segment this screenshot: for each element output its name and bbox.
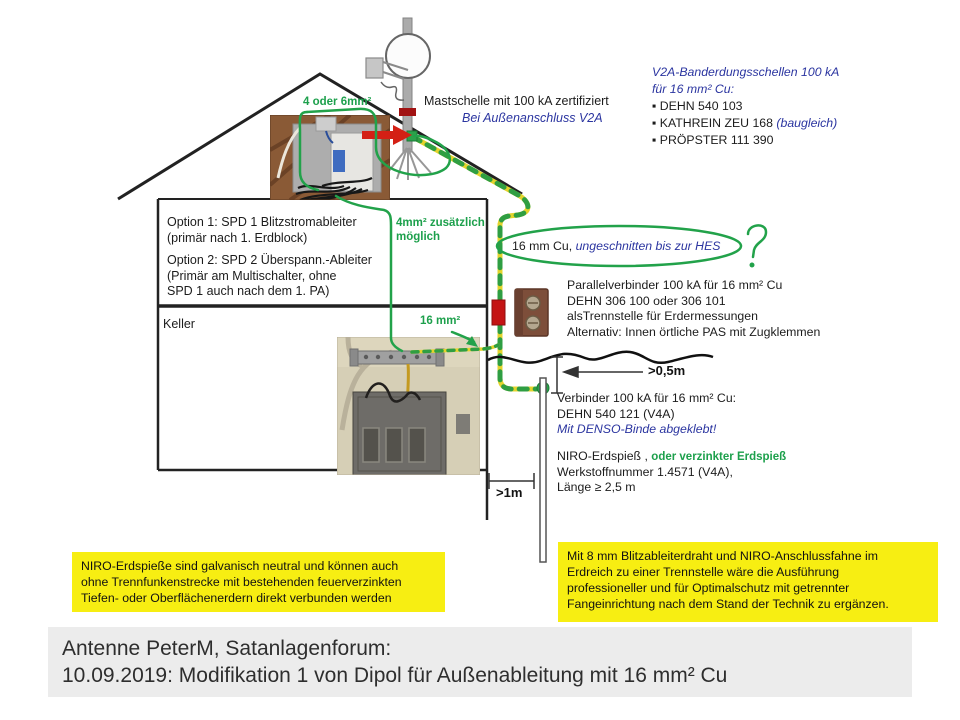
- mast-clamp-label: Mastschelle mit 100 kA zertifiziert: [424, 94, 609, 110]
- lnb-box-icon: [366, 58, 383, 78]
- basement-photo: [337, 337, 480, 476]
- mast-clamp-note: Bei Außenanschluss V2A: [462, 111, 603, 127]
- verbinder-line3: Mit DENSO-Binde abgeklebt!: [557, 422, 736, 438]
- caption-bar: Antenne PeterM, Satanlagenforum: 10.09.2…: [48, 627, 912, 697]
- bullet-icon: ▪: [652, 116, 656, 130]
- keller-label: Keller: [163, 317, 195, 333]
- mast-clamp-icon: [399, 108, 416, 116]
- parallel-connector-block: Parallelverbinder 100 kA für 16 mm² Cu D…: [567, 278, 820, 340]
- extra-wire-label: 4mm² zusätzlich möglich: [396, 216, 485, 244]
- verbinder-line1: Verbinder 100 kA für 16 mm² Cu:: [557, 391, 736, 407]
- v2a-item-2: ▪ KATHREIN ZEU 168 (baugleich): [652, 115, 839, 132]
- bullet-icon: ▪: [652, 133, 656, 147]
- ground-line: [488, 352, 713, 363]
- note-right-line2: Erdreich zu einer Trennstelle wäre die A…: [567, 564, 929, 580]
- option1-line1: Option 1: SPD 1 Blitzstromableiter: [167, 215, 372, 231]
- caption-line1: Antenne PeterM, Satanlagenforum:: [62, 635, 912, 662]
- diagram-page: V2A-Banderdungsschellen 100 kA für 16 mm…: [0, 0, 960, 720]
- option1-line2: (primär nach 1. Erdblock): [167, 231, 372, 247]
- niro-block: NIRO-Erdspieß , oder verzinkter Erdspieß…: [557, 449, 786, 496]
- v2a-title-line1: V2A-Banderdungsschellen 100 kA: [652, 64, 839, 81]
- hes-note-black: 16 mm Cu,: [512, 239, 576, 253]
- option2-line2: (Primär am Multischalter, ohne: [167, 269, 372, 285]
- verbinder-line2: DEHN 540 121 (V4A): [557, 407, 736, 423]
- parallel-line3: alsTrennstelle für Erdermessungen: [567, 309, 820, 325]
- hes-note-blue: ungeschnitten bis zur HES: [576, 239, 721, 253]
- caption-line2: 10.09.2019: Modifikation 1 von Dipol für…: [62, 662, 912, 689]
- earth-rod-icon: [540, 378, 546, 562]
- niro-line1-green: oder verzinkter Erdspieß: [651, 451, 786, 463]
- note-right-line1: Mit 8 mm Blitzableiterdraht und NIRO-Ans…: [567, 548, 929, 564]
- niro-line1: NIRO-Erdspieß , oder verzinkter Erdspieß: [557, 449, 786, 465]
- note-right-line4: Fangeinrichtung nach dem Stand der Techn…: [567, 596, 929, 612]
- options-block: Option 1: SPD 1 Blitzstromableiter (prim…: [167, 215, 372, 300]
- rod-offset-label: >1m: [496, 485, 522, 501]
- satellite-dish-icon: [386, 34, 430, 78]
- verbinder-block: Verbinder 100 kA für 16 mm² Cu: DEHN 540…: [557, 391, 736, 438]
- parallel-line4: Alternativ: Innen örtliche PAS mit Zugkl…: [567, 325, 820, 341]
- v2a-item-2-note: (baugleich): [776, 116, 837, 130]
- parallel-line2: DEHN 306 100 oder 306 101: [567, 294, 820, 310]
- wall-cable-clamp-icon: [492, 300, 505, 325]
- note-left-line2: ohne Trennfunkenstrecke mit bestehenden …: [81, 574, 436, 590]
- bullet-icon: ▪: [652, 99, 656, 113]
- question-squiggle-icon: [748, 225, 766, 257]
- parallel-connector-photo: [515, 289, 548, 336]
- note-right-line3: professioneller und für Optimalschutz mi…: [567, 580, 929, 596]
- niro-line3: Länge ≥ 2,5 m: [557, 480, 786, 496]
- note-left-line3: Tiefen- oder Oberflächenerdern direkt ve…: [81, 590, 436, 606]
- note-right: Mit 8 mm Blitzableiterdraht und NIRO-Ans…: [558, 542, 938, 622]
- basement-wire-label: 16 mm²: [420, 314, 460, 328]
- attic-photo: [270, 115, 390, 206]
- option2-line1: Option 2: SPD 2 Überspann.-Ableiter: [167, 253, 372, 269]
- v2a-clamp-list: V2A-Banderdungsschellen 100 kA für 16 mm…: [652, 64, 839, 149]
- parallel-line1: Parallelverbinder 100 kA für 16 mm² Cu: [567, 278, 820, 294]
- v2a-item-3: ▪ PRÖPSTER 111 390: [652, 132, 839, 149]
- cable-coil-icon: [381, 82, 404, 100]
- note-left-line1: NIRO-Erdspieße sind galvanisch neutral u…: [81, 558, 436, 574]
- note-left: NIRO-Erdspieße sind galvanisch neutral u…: [72, 552, 445, 612]
- option2-line3: SPD 1 auch nach dem 1. PA): [167, 284, 372, 300]
- v2a-item-1: ▪ DEHN 540 103: [652, 98, 839, 115]
- niro-line2: Werkstoffnummer 1.4571 (V4A),: [557, 465, 786, 481]
- dimension-ground-offset: [551, 357, 643, 393]
- v2a-title-line2: für 16 mm² Cu:: [652, 81, 839, 98]
- attic-wire-label: 4 oder 6mm²: [303, 95, 371, 109]
- hes-note: 16 mm Cu, ungeschnitten bis zur HES: [512, 239, 720, 255]
- ground-offset-label: >0,5m: [648, 363, 685, 379]
